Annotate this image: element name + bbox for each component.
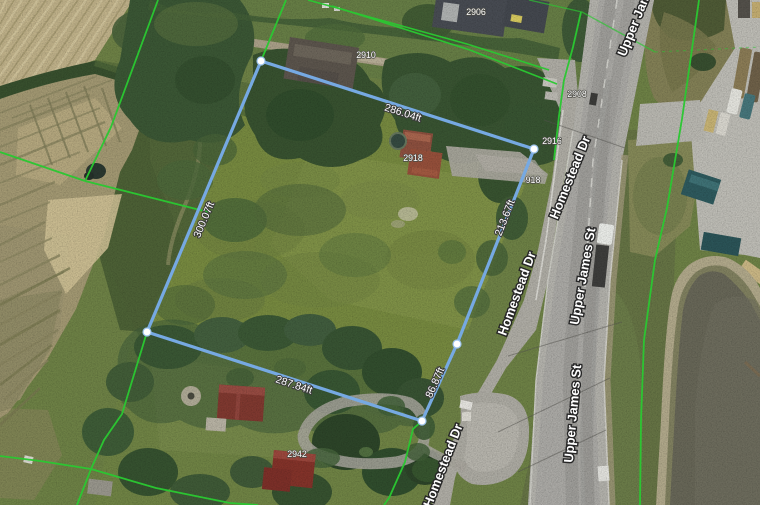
svg-text:2916: 2916 [542, 136, 562, 146]
svg-text:918: 918 [526, 175, 541, 185]
svg-text:2942: 2942 [287, 449, 307, 459]
svg-text:2906: 2906 [466, 7, 486, 17]
svg-text:2918: 2918 [403, 153, 423, 163]
svg-text:2908: 2908 [567, 89, 587, 99]
svg-text:2910: 2910 [356, 50, 376, 60]
